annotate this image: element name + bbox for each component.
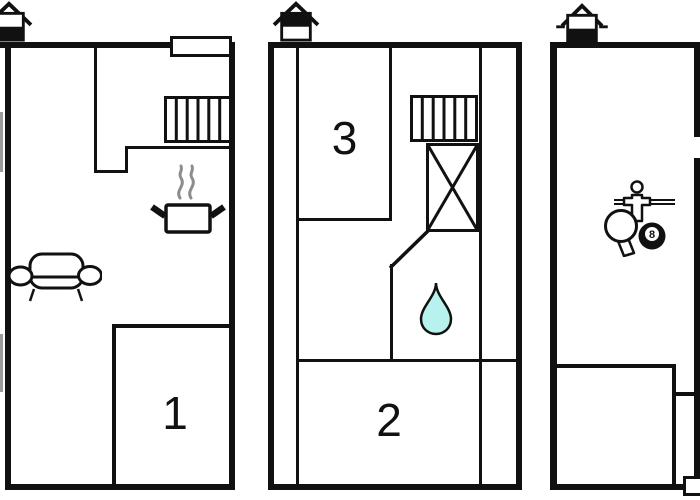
games-icons: 8 xyxy=(598,177,676,257)
wall-segment xyxy=(125,146,229,149)
wall-segment xyxy=(672,364,676,484)
wall-segment xyxy=(389,48,392,221)
cooking-pot-icon xyxy=(147,158,227,236)
room-label-2: 2 xyxy=(352,392,426,448)
wall-segment xyxy=(694,42,700,137)
crossed-box-icon xyxy=(426,143,479,232)
window-marker xyxy=(170,36,232,57)
wall-segment xyxy=(296,359,516,362)
stairs-icon xyxy=(164,96,232,143)
wall-segment xyxy=(268,42,522,48)
wall-segment xyxy=(268,42,274,490)
wall-segment xyxy=(112,324,235,328)
wall-segment xyxy=(550,484,700,490)
wall-segment xyxy=(112,324,116,484)
stairs-icon xyxy=(410,95,478,142)
table-tennis-icon xyxy=(606,211,637,257)
wall-segment xyxy=(676,392,700,396)
ball-number: 8 xyxy=(649,229,655,241)
wall-segment xyxy=(125,147,128,173)
window-marker xyxy=(0,112,3,172)
window-marker xyxy=(0,334,3,392)
water-drop-icon xyxy=(416,280,456,337)
house-level-first-icon xyxy=(272,0,320,42)
window-marker xyxy=(683,476,700,496)
room-label-1: 1 xyxy=(138,385,212,441)
wall-segment xyxy=(5,484,235,490)
wall-segment xyxy=(694,158,700,484)
wall-segment xyxy=(268,484,522,490)
wall-segment xyxy=(94,170,128,173)
wall-diagonal-segment xyxy=(388,228,432,270)
wall-segment xyxy=(551,364,676,368)
house-level-basement-icon xyxy=(556,1,608,43)
wall-segment xyxy=(94,48,97,173)
wall-segment xyxy=(550,42,557,490)
house-level-ground-icon xyxy=(0,0,33,42)
wall-segment xyxy=(390,264,393,361)
billiard-ball-icon: 8 xyxy=(639,223,666,250)
wall-segment xyxy=(479,48,482,484)
room-label-3: 3 xyxy=(308,110,381,166)
wall-segment xyxy=(296,48,299,484)
wall-segment xyxy=(516,42,522,490)
floor-plan-canvas: 1 xyxy=(0,0,700,500)
wall-segment xyxy=(296,218,392,221)
sofa-icon xyxy=(8,247,102,305)
